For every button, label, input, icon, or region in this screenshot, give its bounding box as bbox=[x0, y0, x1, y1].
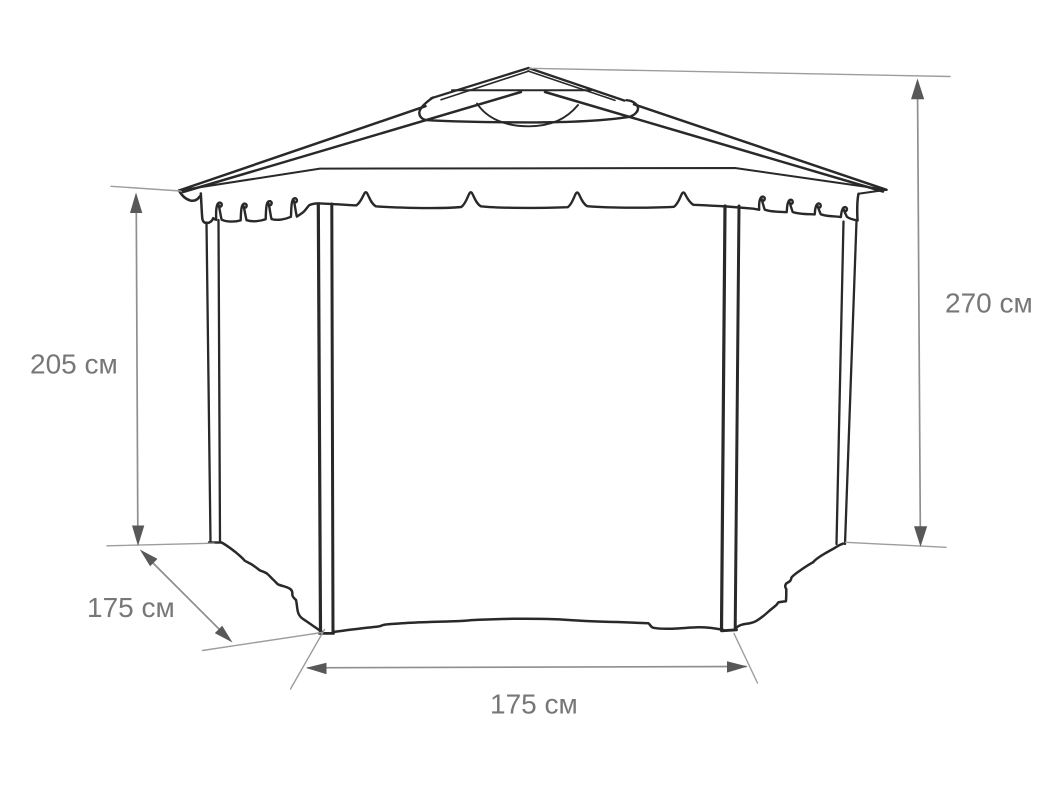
svg-text:175 см: 175 см bbox=[87, 592, 175, 623]
svg-text:205 см: 205 см bbox=[30, 349, 118, 380]
svg-text:175 см: 175 см bbox=[490, 689, 578, 720]
svg-text:270 см: 270 см bbox=[945, 288, 1033, 319]
